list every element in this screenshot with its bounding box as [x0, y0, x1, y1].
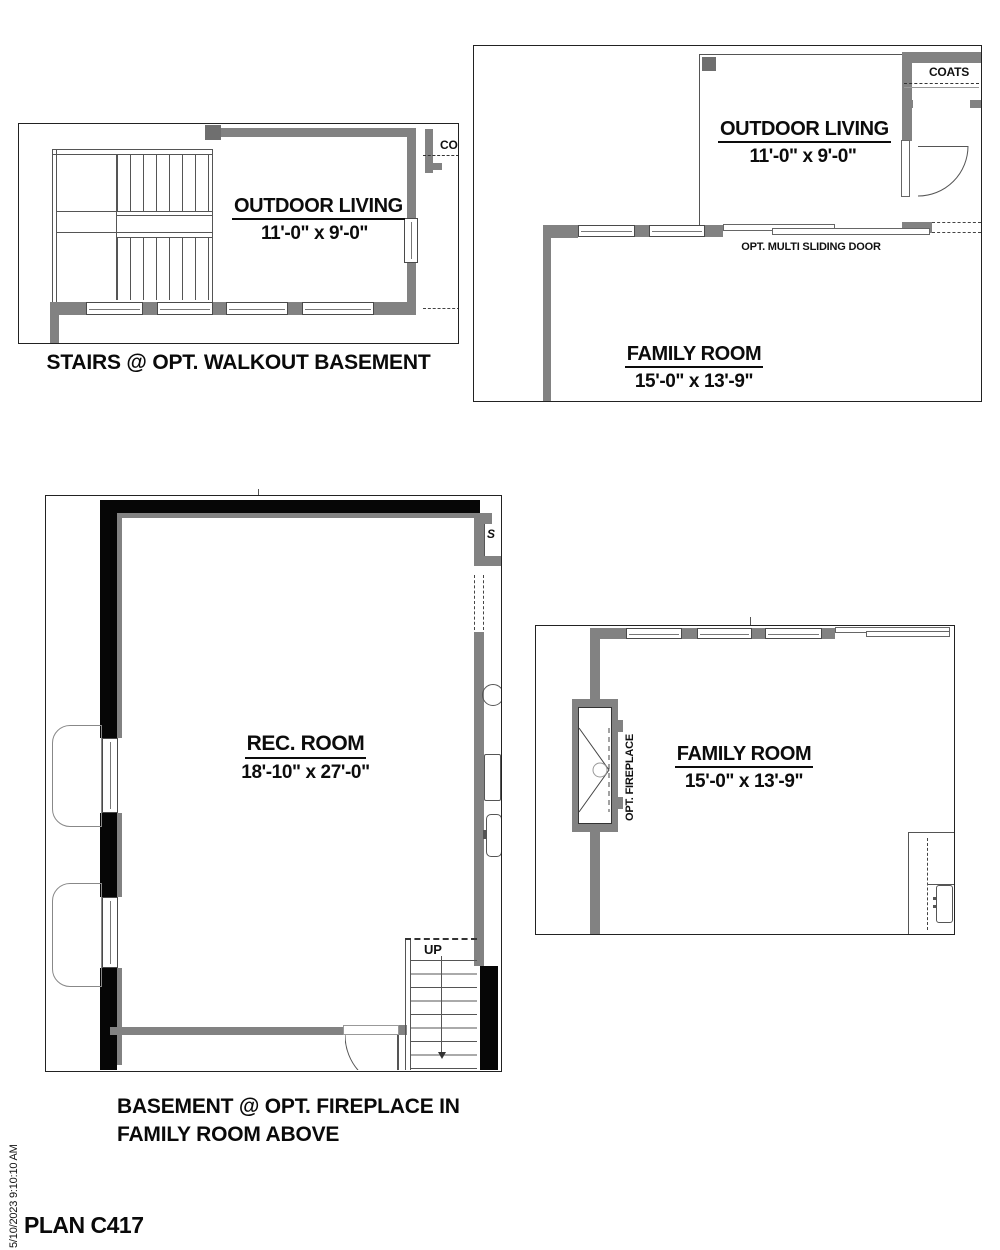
window [765, 628, 822, 639]
wall-segment [474, 556, 501, 566]
door-arc-icon [918, 146, 970, 198]
wall-segment [474, 632, 484, 966]
window [302, 302, 374, 315]
plan-basement-frame: S UP [45, 495, 502, 1072]
window [157, 302, 213, 315]
sliding-door-panel [772, 228, 930, 235]
wall-segment [221, 128, 416, 137]
dashed-wall-line [932, 232, 981, 233]
wall-segment [50, 315, 59, 343]
window-well [52, 725, 102, 827]
stair-wall-line [212, 149, 213, 303]
wall-segment [100, 813, 117, 897]
stair-treads-lower [117, 238, 212, 300]
closet-shelf-line [423, 155, 459, 156]
wall-segment [374, 302, 416, 315]
coats-label: COATS [920, 65, 978, 79]
room-dims: 11'-0" x 9'-0" [718, 146, 888, 167]
stair-direction-line [441, 956, 442, 1054]
room-name: OUTDOOR LIVING [232, 195, 405, 220]
window [86, 302, 143, 315]
wall-segment [590, 628, 600, 702]
dashed-opening [474, 575, 475, 630]
wall-pier [752, 628, 765, 639]
wall-segment [407, 263, 416, 304]
floor-plan-sheet: CO OUTDOOR LIVING 11'-0" x 9'-0" STAIRS … [0, 0, 1000, 1250]
wall-pier [213, 302, 226, 315]
plan-basement-caption: BASEMENT @ OPT. FIREPLACE IN FAMILY ROOM… [117, 1093, 460, 1149]
room-label-group: REC. ROOM 18'-10" x 27'-0" [218, 732, 393, 783]
window [626, 628, 682, 639]
wall-face [117, 513, 489, 518]
sink-icon [486, 814, 502, 857]
sliding-door-panel [866, 631, 950, 637]
sliding-door-note: OPT. MULTI SLIDING DOOR [721, 241, 901, 253]
landing-line [117, 215, 212, 216]
wall-stub [618, 720, 623, 732]
wall-post [205, 125, 221, 140]
wall-face [117, 518, 122, 738]
door-leaf [397, 1035, 399, 1070]
window [578, 225, 635, 237]
stair-cut-line [405, 938, 477, 940]
window [649, 225, 705, 237]
wall-line [484, 524, 485, 558]
door-arc-icon [345, 1035, 399, 1070]
room-label-group: OUTDOOR LIVING 11'-0" x 9'-0" [232, 195, 397, 245]
room-dims: 15'-0" x 13'-9" [609, 371, 779, 392]
cabinet-icon [484, 754, 501, 801]
faucet-icon [483, 830, 487, 839]
toilet-icon [482, 684, 502, 706]
wall-segment [50, 302, 86, 315]
wall-face [117, 968, 122, 1065]
door-jamb [901, 140, 910, 197]
wall-segment [407, 137, 416, 218]
wall-segment [100, 500, 480, 513]
print-timestamp: 5/10/2023 9:10:10 AM [8, 1134, 20, 1248]
patio-edge-line [699, 54, 700, 225]
partial-label: S [487, 527, 495, 541]
window-well [52, 883, 102, 987]
faucet-icon [933, 897, 936, 900]
window [226, 302, 288, 315]
stair-wall-line [405, 940, 406, 1070]
room-label-group: OUTDOOR LIVING 11'-0" x 9'-0" [718, 118, 888, 168]
patio-edge-line [699, 54, 903, 55]
wall-post [702, 57, 716, 71]
room-name: REC. ROOM [245, 732, 367, 759]
wall-pier [288, 302, 302, 315]
landing-line [56, 232, 212, 233]
down-arrow-icon [438, 1052, 446, 1059]
stair-wall-line [52, 149, 53, 303]
wall-pier [143, 302, 157, 315]
rod-bracket [970, 100, 981, 108]
room-name: FAMILY ROOM [675, 743, 814, 768]
plan-family-room-frame: OPT. FIREPLACE FAMILY ROOM 15'-0" x 13'-… [535, 625, 955, 935]
wall-segment [590, 832, 600, 934]
up-label: UP [424, 942, 442, 957]
window [102, 897, 118, 968]
wall-stub [618, 797, 623, 809]
wall-pier [705, 225, 723, 237]
faucet-icon [933, 905, 936, 908]
plan-walkout-frame: CO OUTDOOR LIVING 11'-0" x 9'-0" [18, 123, 459, 344]
plan-number: PLAN C417 [24, 1212, 143, 1239]
landing-line [56, 211, 212, 212]
dashed-wall-line [932, 222, 981, 223]
partial-coats-label: CO [440, 138, 458, 152]
wall-face [117, 813, 122, 897]
caption-line2: FAMILY ROOM ABOVE [117, 1121, 460, 1149]
wall-segment [480, 966, 498, 1070]
room-dims: 18'-10" x 27'-0" [218, 762, 393, 783]
closet-rod-line [904, 87, 979, 88]
window [102, 738, 118, 813]
room-label-group: FAMILY ROOM 15'-0" x 13'-9" [609, 343, 779, 393]
room-dims: 11'-0" x 9'-0" [232, 223, 397, 244]
fireplace-note: OPT. FIREPLACE [624, 726, 636, 821]
window [404, 218, 418, 263]
wall-segment [543, 225, 551, 401]
wall-pier [822, 628, 835, 639]
wall-segment [425, 129, 433, 173]
stair-wall-line [52, 149, 213, 150]
dashed-wall-line [423, 308, 459, 309]
wall-segment [902, 52, 912, 141]
plan-walkout-caption: STAIRS @ OPT. WALKOUT BASEMENT [18, 351, 459, 375]
rod-bracket [902, 100, 913, 108]
wall-segment [902, 52, 981, 63]
stair-treads-upper [117, 155, 212, 211]
room-dims: 15'-0" x 13'-9" [659, 771, 829, 792]
caption-line1: BASEMENT @ OPT. FIREPLACE IN [117, 1093, 460, 1121]
wall-segment [100, 505, 117, 738]
room-name: OUTDOOR LIVING [718, 118, 891, 143]
room-label-group: FAMILY ROOM 15'-0" x 13'-9" [659, 743, 829, 793]
wall-stub [433, 163, 442, 170]
dashed-opening [483, 575, 484, 630]
room-name: FAMILY ROOM [625, 343, 764, 368]
wall-pier [682, 628, 697, 639]
door-header [343, 1025, 399, 1035]
sink-icon [936, 885, 953, 923]
wall-pier [635, 225, 649, 237]
window [697, 628, 752, 639]
closet-shelf-line [904, 83, 979, 84]
wall-segment [110, 1027, 343, 1035]
fireplace-icon [578, 707, 612, 824]
stair-wall-line [56, 149, 57, 303]
wall-segment [100, 968, 117, 1070]
plan-main-level-frame: COATS OPT. MULTI SLIDING DOOR OUTDOOR LI… [473, 45, 982, 402]
